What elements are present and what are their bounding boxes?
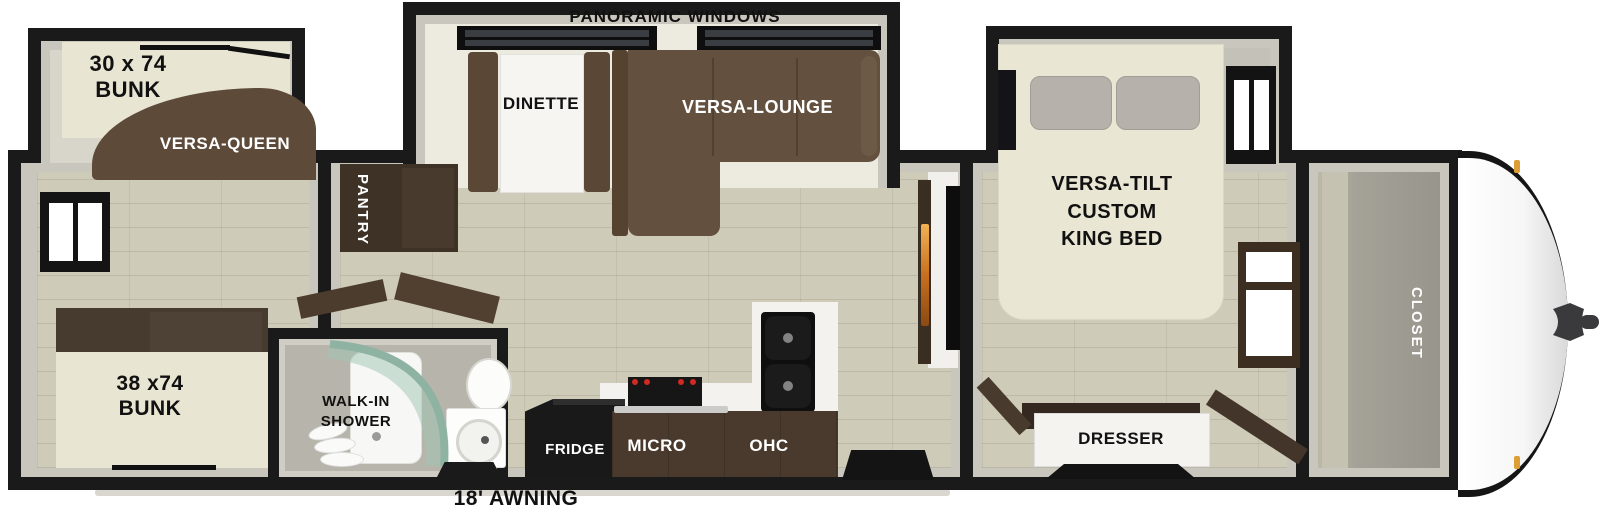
window-glass xyxy=(465,30,649,37)
closet-room xyxy=(1296,150,1462,490)
ohc-label: OHC xyxy=(741,436,797,456)
sofa-armrest xyxy=(861,56,877,156)
kitchen-sink xyxy=(761,312,815,412)
versa-lounge-label: VERSA-LOUNGE xyxy=(675,97,840,118)
hitch-coupler xyxy=(1550,301,1600,343)
fridge xyxy=(525,399,625,477)
microwave-bar xyxy=(614,406,728,413)
sink-bowl xyxy=(456,419,502,465)
bunk-bottom-label: 38 x74 BUNK xyxy=(84,372,216,422)
king-bed-label: VERSA-TILT CUSTOM KING BED xyxy=(1012,171,1212,254)
bunk-ladder-bar xyxy=(140,45,230,50)
window-pane xyxy=(1246,290,1292,356)
panoramic-window-right xyxy=(697,26,881,50)
closet-shelf xyxy=(1322,172,1348,468)
sink-drain xyxy=(783,381,793,391)
panoramic-window-left xyxy=(457,26,657,50)
dinette-label: DINETTE xyxy=(499,94,583,114)
dinette-bench-left xyxy=(468,52,498,192)
window-pane xyxy=(1234,80,1249,150)
window-pane xyxy=(78,203,102,261)
bedroom-window-top-right xyxy=(1226,66,1276,164)
window-glass xyxy=(705,40,873,46)
fridge-top-edge xyxy=(553,399,625,405)
window-glass xyxy=(465,40,649,46)
floorplan-canvas: PANORAMIC WINDOWS 30 x 74 BUNK VERSA-QUE… xyxy=(0,0,1600,516)
bathroom-mat xyxy=(437,462,501,477)
dresser-mat xyxy=(1046,464,1196,479)
cabinet-step xyxy=(150,312,262,354)
bedroom-slideout-window xyxy=(998,70,1016,150)
window-pane xyxy=(1254,80,1269,150)
burner-knob xyxy=(644,379,650,385)
fireplace-flame xyxy=(921,224,929,326)
left-wall-window xyxy=(40,192,110,272)
dinette-bench-right xyxy=(584,52,610,192)
walk-in-shower-label: WALK-IN SHOWER xyxy=(300,392,412,431)
bed-pillow xyxy=(1116,76,1200,130)
micro-label: MICRO xyxy=(624,436,690,456)
bunk-bottom-cabinet xyxy=(56,308,268,354)
pantry-label: PANTRY xyxy=(349,170,371,250)
lounge-arm-left xyxy=(612,50,628,236)
tv xyxy=(946,186,960,350)
burner-knob xyxy=(632,379,638,385)
marker-light xyxy=(1514,456,1520,469)
entry-door-step xyxy=(842,450,934,480)
sink-faucet-dot xyxy=(481,436,489,444)
shower-shelf xyxy=(320,452,364,467)
marker-light xyxy=(1514,160,1520,173)
bunk-bottom-edge xyxy=(112,465,216,470)
shower-drain xyxy=(372,432,381,441)
bed-pillow xyxy=(1030,76,1112,130)
closet-label: CLOSET xyxy=(1401,281,1425,365)
burner-knob xyxy=(678,379,684,385)
bunk-top-label: 30 x 74 BUNK xyxy=(70,51,186,103)
panoramic-windows-label: PANORAMIC WINDOWS xyxy=(545,7,805,27)
burner-knob xyxy=(690,379,696,385)
bedroom-window-right xyxy=(1238,242,1300,368)
pantry-door xyxy=(402,168,454,248)
dinette-table xyxy=(500,54,584,193)
awning-label: 18' AWNING xyxy=(436,487,596,512)
toilet xyxy=(466,358,512,412)
window-pane xyxy=(1246,252,1292,282)
sink-drain xyxy=(783,333,793,343)
lounge-chaise xyxy=(628,162,720,236)
versa-queen-label: VERSA-QUEEN xyxy=(150,134,300,154)
fridge-label: FRIDGE xyxy=(528,441,622,459)
window-pane xyxy=(49,203,73,261)
dresser-label: DRESSER xyxy=(1049,429,1193,449)
window-glass xyxy=(705,30,873,37)
